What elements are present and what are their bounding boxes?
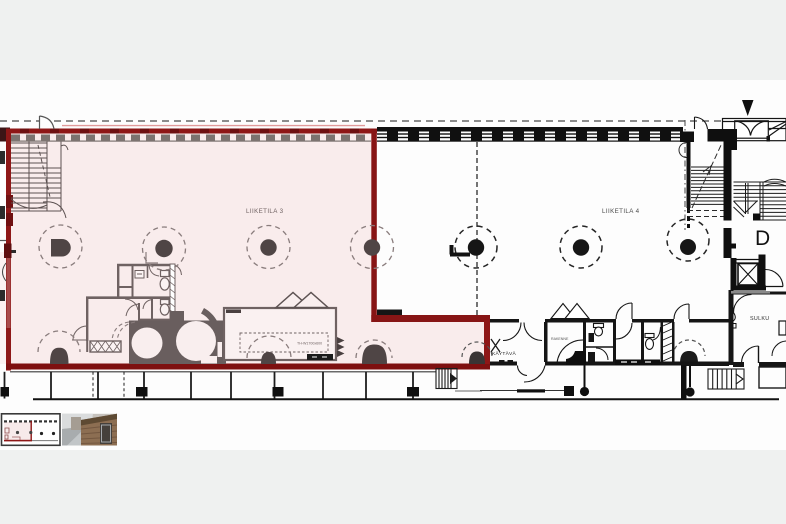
svg-text:TH-W1700x600: TH-W1700x600: [297, 342, 322, 346]
svg-text:RAKENNE: RAKENNE: [551, 337, 569, 341]
svg-text:KÄYTÄVÄ: KÄYTÄVÄ: [492, 350, 516, 357]
svg-text:LIIKETILA 3: LIIKETILA 3: [246, 208, 284, 215]
svg-text:SULKU: SULKU: [750, 316, 769, 322]
svg-text:D: D: [755, 227, 770, 250]
svg-text:LIIKETILA 4: LIIKETILA 4: [602, 208, 640, 215]
